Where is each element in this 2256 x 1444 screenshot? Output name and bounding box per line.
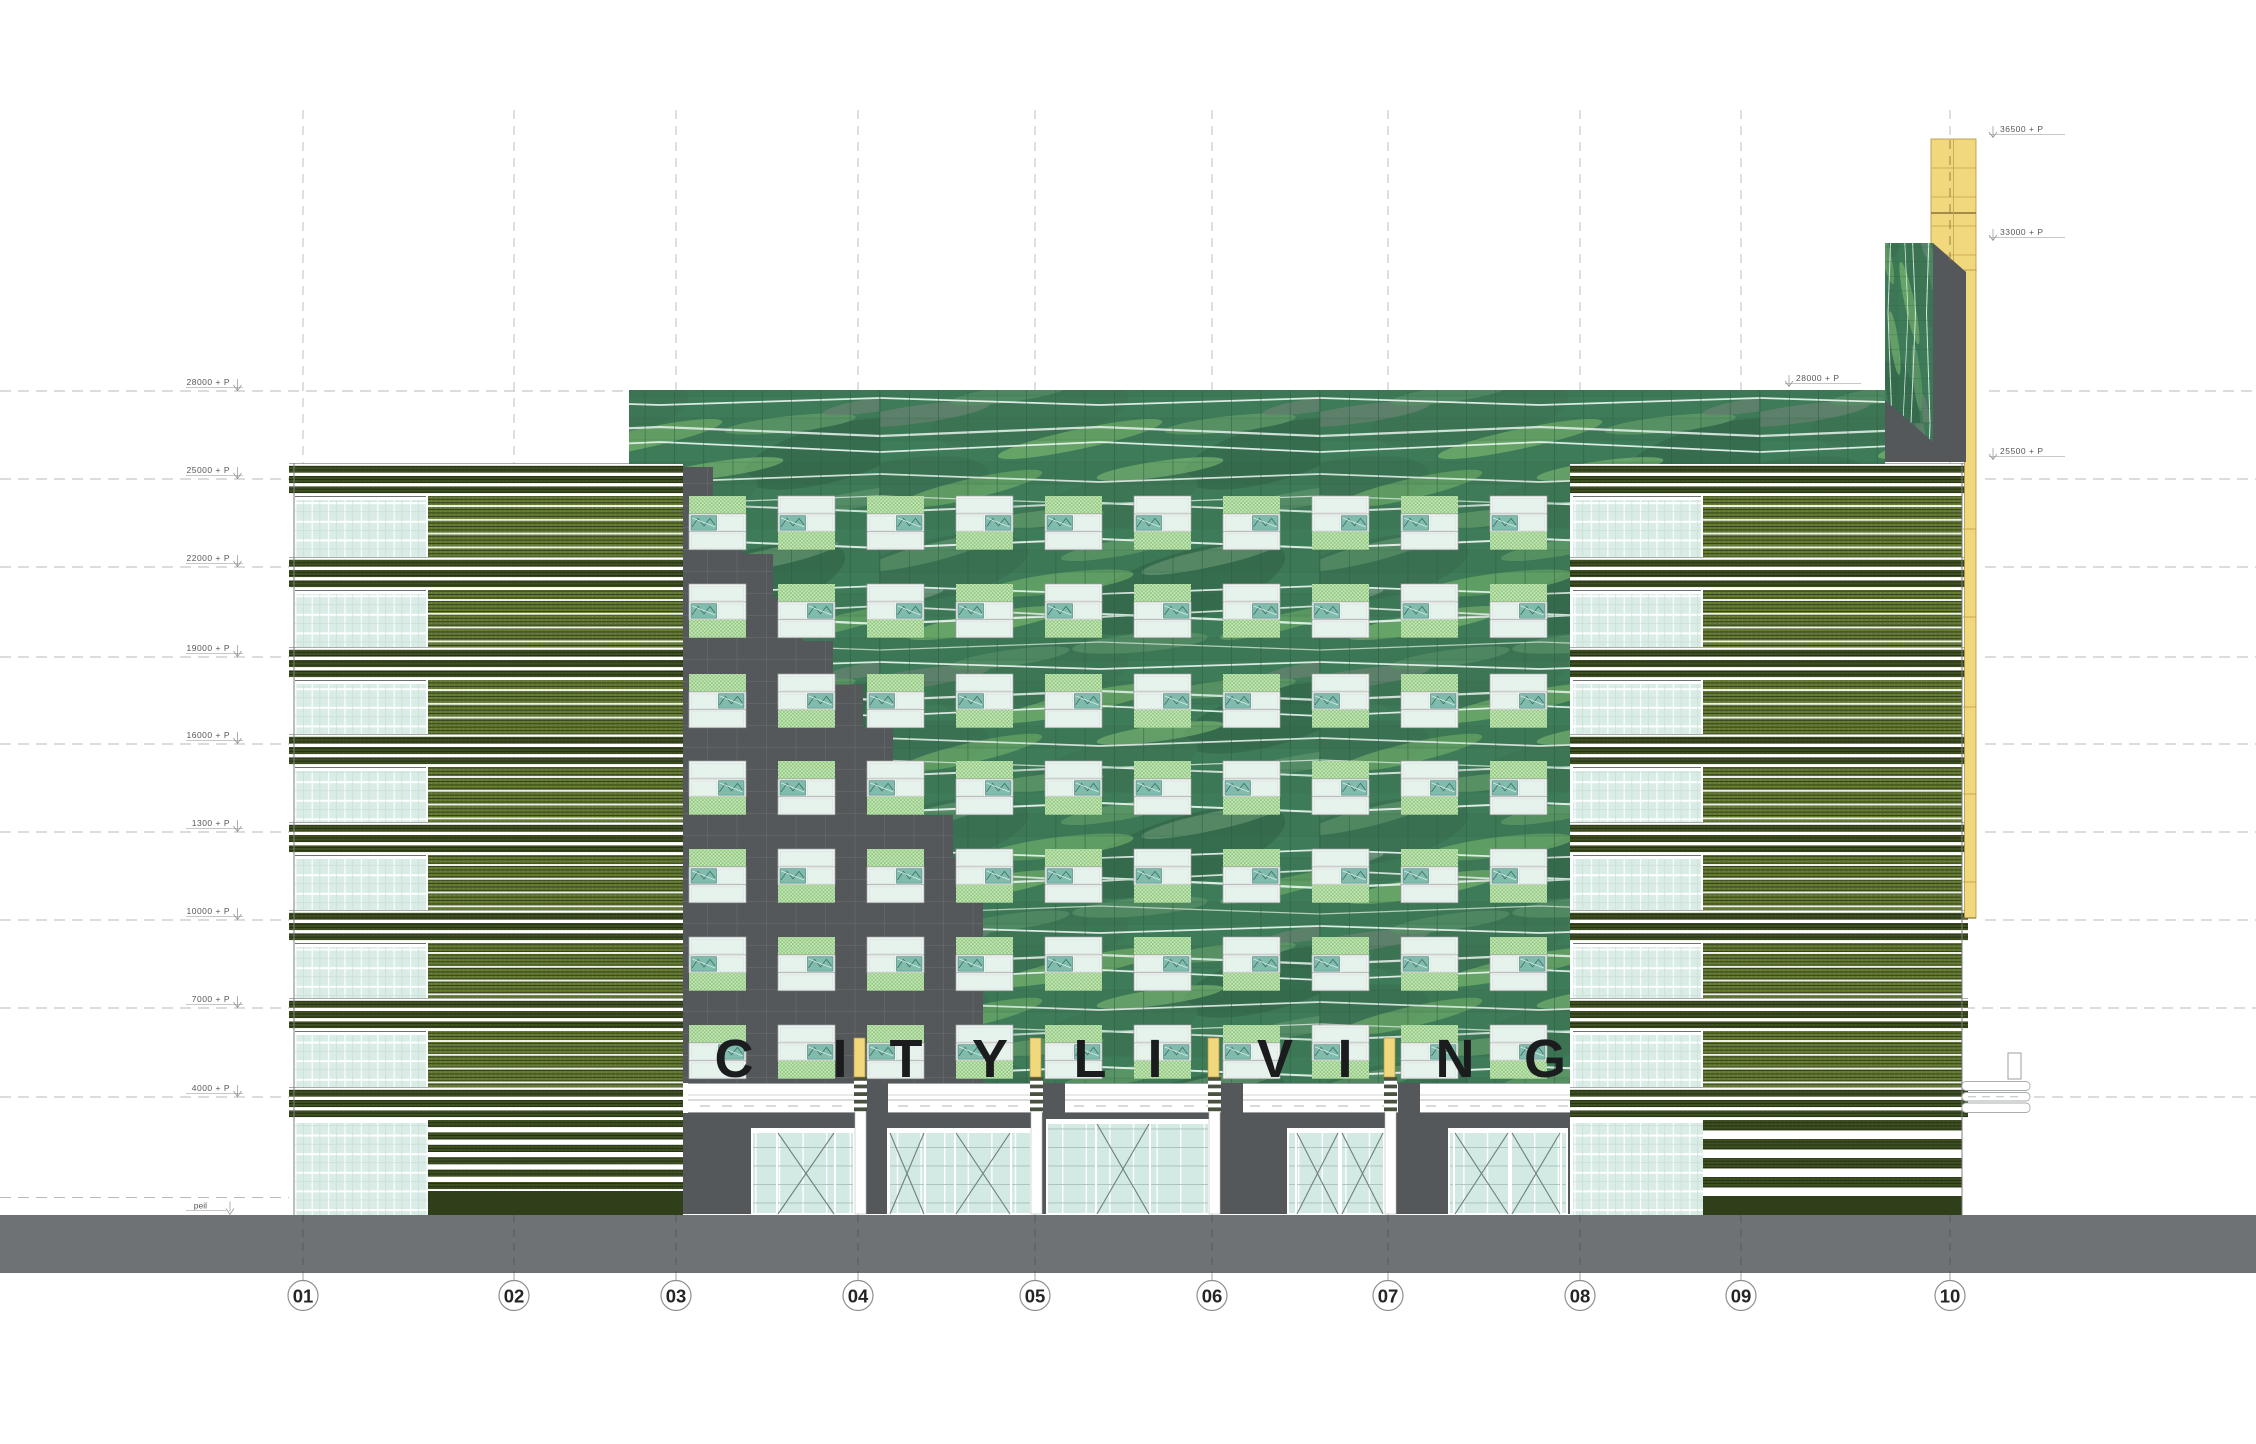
svg-text:03: 03 (666, 1286, 687, 1307)
svg-text:22000 + P: 22000 + P (187, 553, 231, 563)
svg-text:28000 + P: 28000 + P (1796, 373, 1840, 383)
svg-text:L: L (1074, 1029, 1107, 1089)
svg-text:10: 10 (1940, 1286, 1961, 1307)
svg-text:T: T (890, 1029, 923, 1089)
svg-text:I: I (832, 1029, 847, 1089)
svg-text:G: G (1524, 1029, 1566, 1089)
svg-text:07: 07 (1378, 1286, 1399, 1307)
svg-text:36500 + P: 36500 + P (2000, 124, 2044, 134)
svg-text:Y: Y (972, 1029, 1008, 1089)
svg-text:4000 + P: 4000 + P (192, 1083, 230, 1093)
svg-text:I: I (1147, 1029, 1162, 1089)
svg-text:I: I (1337, 1029, 1352, 1089)
svg-text:C: C (715, 1029, 754, 1089)
svg-text:33000 + P: 33000 + P (2000, 227, 2044, 237)
svg-text:N: N (1436, 1029, 1475, 1089)
svg-text:25000 + P: 25000 + P (187, 465, 231, 475)
svg-text:19000 + P: 19000 + P (187, 643, 231, 653)
svg-text:16000 + P: 16000 + P (187, 730, 231, 740)
svg-text:02: 02 (504, 1286, 525, 1307)
svg-text:peil: peil (194, 1201, 207, 1211)
svg-text:V: V (1257, 1029, 1293, 1089)
svg-text:04: 04 (848, 1286, 869, 1307)
svg-text:05: 05 (1025, 1286, 1046, 1307)
svg-text:08: 08 (1570, 1286, 1591, 1307)
svg-text:06: 06 (1202, 1286, 1223, 1307)
svg-text:01: 01 (293, 1286, 314, 1307)
svg-text:10000 + P: 10000 + P (187, 906, 231, 916)
svg-text:28000 + P: 28000 + P (187, 377, 231, 387)
svg-text:7000 + P: 7000 + P (192, 994, 230, 1004)
svg-text:09: 09 (1731, 1286, 1752, 1307)
svg-text:25500 + P: 25500 + P (2000, 446, 2044, 456)
svg-text:1300 + P: 1300 + P (192, 818, 230, 828)
